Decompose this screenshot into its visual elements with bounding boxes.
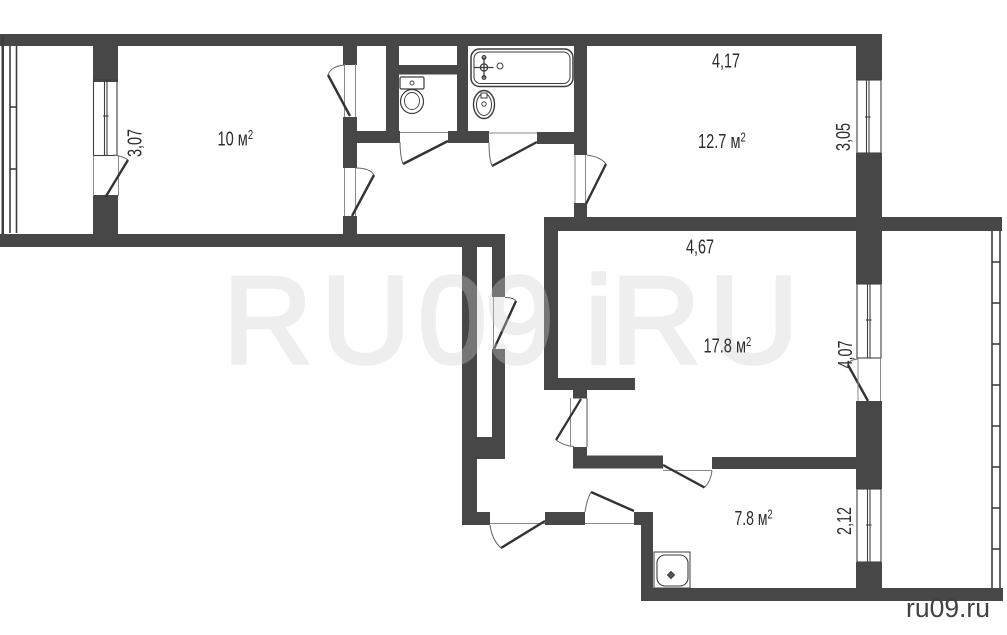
svg-text:2,12: 2,12 (833, 507, 856, 535)
svg-text:9: 9 (485, 252, 554, 390)
svg-text:R: R (223, 252, 313, 390)
svg-text:4,17: 4,17 (712, 49, 740, 72)
svg-text:0: 0 (418, 252, 487, 390)
svg-text:12.7 м2: 12.7 м2 (698, 130, 746, 153)
svg-text:i: i (585, 252, 613, 390)
svg-text:U: U (321, 252, 411, 390)
svg-text:4,07: 4,07 (834, 340, 857, 368)
svg-text:4,67: 4,67 (686, 235, 714, 258)
svg-text:3,05: 3,05 (832, 123, 855, 151)
svg-text:3,07: 3,07 (123, 129, 146, 157)
svg-text:17.8 м2: 17.8 м2 (704, 334, 752, 357)
svg-text:7.8 м2: 7.8 м2 (735, 506, 773, 529)
svg-text:R: R (611, 252, 701, 390)
svg-text:10 м2: 10 м2 (218, 127, 254, 150)
svg-text:U: U (709, 252, 799, 390)
svg-text:ru09.ru: ru09.ru (906, 593, 990, 623)
